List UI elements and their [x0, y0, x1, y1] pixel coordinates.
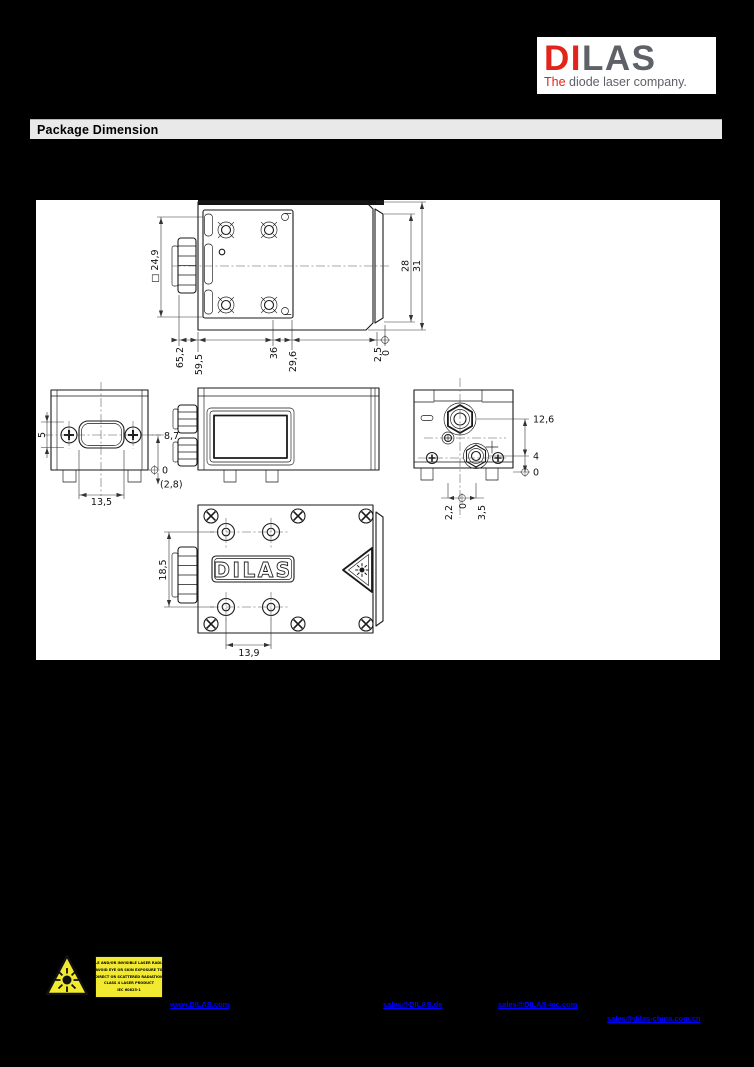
top-view: □ 24,9 65,2 59,5 36 29,6 2,5 0 28 31 [150, 200, 426, 375]
dim-label-right-zero: 0 [533, 468, 539, 479]
logo-word-gray: LAS [582, 39, 657, 78]
bottom-view: DILAS 18,5 13,9 [158, 505, 383, 659]
right-side-view: 12,6 4 0 2,2 0 3,5 [414, 378, 554, 520]
left-side-view: 5 13,5 8,7 0 (2,8) [37, 382, 183, 508]
section-header-bar: Package Dimension [30, 119, 722, 139]
logo-tagline: The diode laser company. [544, 75, 709, 89]
dim-label-2-2: 2,2 [444, 505, 455, 520]
dim-label-top-zero: 0 [381, 350, 392, 356]
dim-label-59-5: 59,5 [194, 354, 205, 375]
dim-label-28: 28 [401, 260, 412, 272]
package-dimension-drawing: □ 24,9 65,2 59,5 36 29,6 2,5 0 28 31 [36, 200, 720, 660]
page: DILAS The diode laser company. Package D… [0, 0, 754, 1067]
warning-line-5: IEC 60825-1 [117, 987, 141, 994]
dilas-logo: DILAS The diode laser company. [537, 37, 716, 94]
warning-line-4: CLASS 4 LASER PRODUCT [104, 980, 154, 987]
dim-label-12-6: 12,6 [533, 415, 554, 426]
dim-label-65-2: 65,2 [175, 347, 186, 368]
link-email-china[interactable]: sales@dilas-china.com.cn [607, 1015, 701, 1023]
warning-line-3: DIRECT OR SCATTERED RADIATION [95, 974, 163, 981]
dim-label-2-8: (2,8) [160, 480, 183, 491]
dim-label-13-5: 13,5 [91, 497, 112, 508]
warning-line-2: AVOID EYE OR SKIN EXPOSURE TO [95, 967, 162, 974]
link-email-germany[interactable]: sales@DILAS.de [383, 1001, 442, 1009]
dim-label-rb-zero: 0 [458, 503, 469, 509]
logo-word-red: DI [544, 39, 582, 78]
dim-label-4: 4 [533, 452, 539, 463]
dim-label-13-9: 13,9 [238, 648, 259, 659]
link-email-usa[interactable]: sales@DILAS-inc.com [498, 1001, 577, 1009]
section-title: Package Dimension [37, 123, 159, 137]
link-website[interactable]: www.DILAS.com [170, 1001, 229, 1009]
dim-label-36: 36 [269, 347, 280, 359]
laser-warning-triangle-icon [44, 953, 90, 1002]
dim-label-8-7: 8,7 [164, 431, 179, 442]
dim-label-3-5: 3,5 [477, 505, 488, 520]
dim-label-29-6: 29,6 [288, 351, 299, 372]
logo-tagline-red: The [544, 75, 566, 89]
logo-tagline-gray: diode laser company. [566, 75, 687, 89]
dim-label-31: 31 [412, 260, 423, 272]
dim-label-top-square: □ 24,9 [150, 249, 161, 282]
warning-line-1: VISIBLE AND/OR INVISIBLE LASER RADIATION [95, 960, 163, 967]
logo-wordmark: DILAS [544, 42, 709, 75]
front-view [173, 388, 379, 482]
dim-label-18-5: 18,5 [158, 559, 169, 580]
dim-label-5: 5 [37, 432, 48, 438]
laser-warning-label: VISIBLE AND/OR INVISIBLE LASER RADIATION… [95, 956, 163, 998]
bottom-view-brand-emboss: DILAS [213, 558, 292, 582]
dim-label-left-zero: 0 [162, 466, 168, 477]
